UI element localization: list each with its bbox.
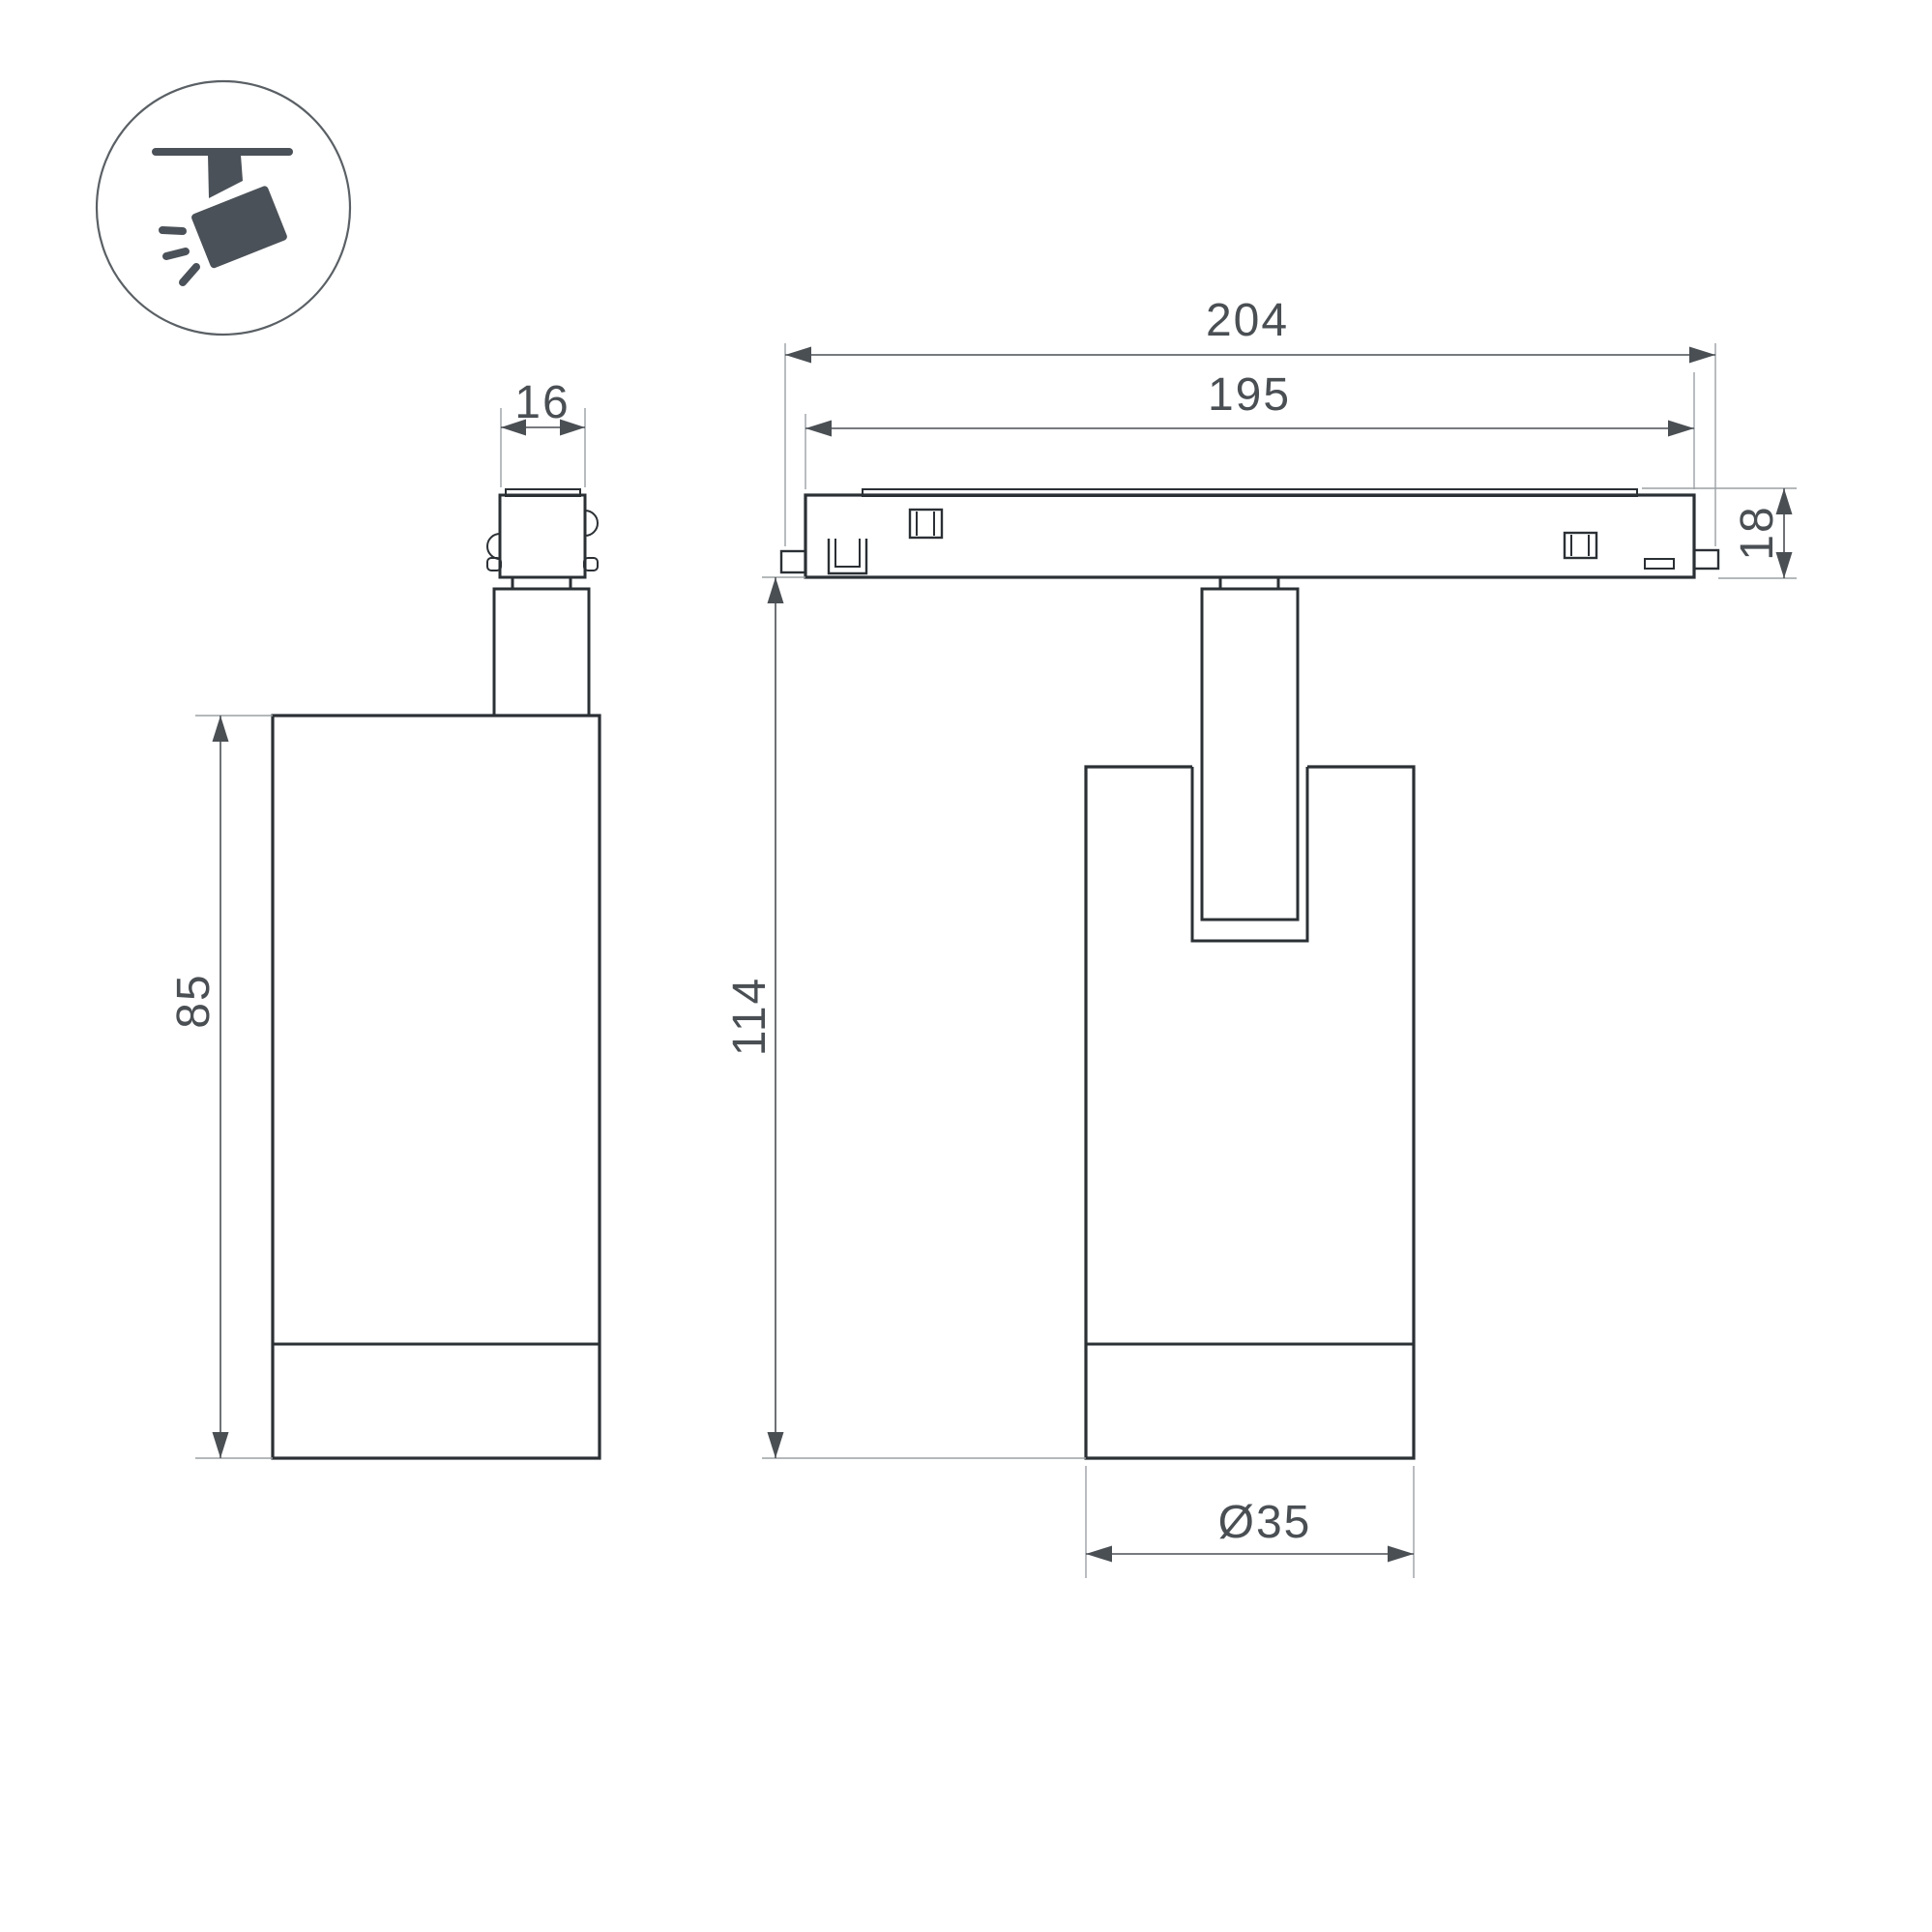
track-clip-left-inner — [835, 539, 860, 567]
side-view — [273, 489, 600, 1458]
track-connector-right — [1565, 533, 1596, 558]
dim-label-body-diameter: Ø35 — [1218, 1500, 1312, 1546]
dimension-body-height — [195, 716, 273, 1458]
track-contact-strip — [1645, 559, 1674, 569]
side-stem — [494, 589, 589, 716]
track-connector-left — [910, 510, 942, 538]
front-stem — [1202, 589, 1298, 920]
track-end-tab-right — [1694, 550, 1718, 569]
side-neck — [512, 577, 571, 589]
track-clip-left-outer — [829, 539, 866, 573]
dimension-drawing: 16 204 195 18 114 85 Ø35 — [0, 0, 1932, 1932]
dim-label-track-overall: 204 — [1206, 298, 1289, 344]
spotlight-icon — [97, 81, 350, 335]
side-adapter-ear-left — [487, 534, 500, 559]
front-body — [1086, 767, 1414, 1458]
dimension-total-height — [762, 577, 1086, 1458]
track-body — [805, 495, 1694, 577]
dim-label-total-height: 114 — [727, 977, 774, 1057]
side-adapter-ear-right — [585, 511, 598, 536]
front-view — [781, 489, 1718, 1458]
front-neck — [1220, 577, 1278, 589]
front-body-slot — [1192, 767, 1307, 941]
dim-label-track-body: 195 — [1208, 372, 1291, 419]
side-track-adapter — [500, 495, 585, 577]
side-body — [273, 716, 600, 1458]
track-end-tab-left — [781, 551, 805, 572]
icon-ceiling-bar — [152, 148, 293, 156]
dim-label-track-height: 18 — [1735, 505, 1781, 560]
drawing-canvas — [0, 0, 1932, 1932]
dim-label-body-height: 85 — [171, 973, 218, 1028]
dim-label-adapter-width: 16 — [514, 380, 570, 426]
